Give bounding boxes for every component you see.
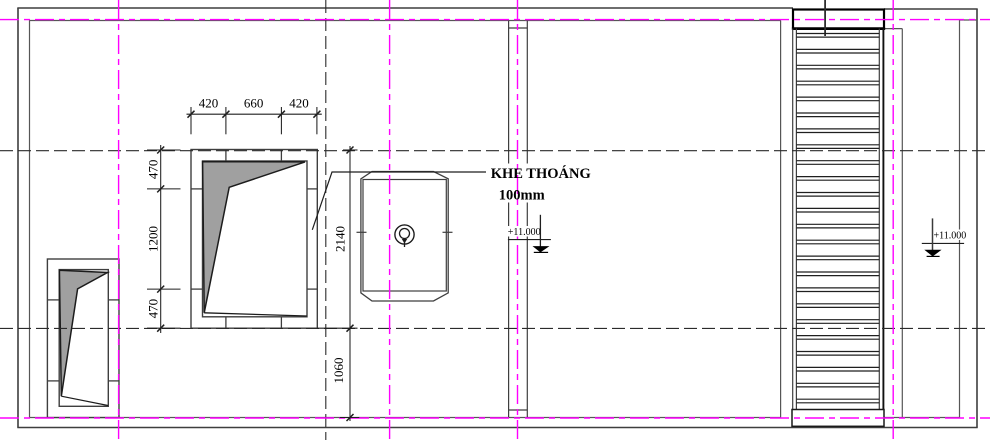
- svg-text:+11.000: +11.000: [508, 227, 541, 238]
- svg-text:660: 660: [244, 96, 264, 111]
- svg-text:420: 420: [289, 96, 309, 111]
- svg-text:2140: 2140: [333, 226, 348, 252]
- svg-text:470: 470: [146, 160, 161, 180]
- svg-text:470: 470: [146, 299, 161, 319]
- svg-text:100mm: 100mm: [499, 187, 545, 203]
- svg-text:420: 420: [199, 96, 219, 111]
- svg-text:KHE THOÁNG: KHE THOÁNG: [491, 165, 591, 182]
- svg-text:1200: 1200: [146, 226, 161, 252]
- svg-text:1060: 1060: [331, 358, 346, 384]
- svg-text:+11.000: +11.000: [934, 231, 967, 242]
